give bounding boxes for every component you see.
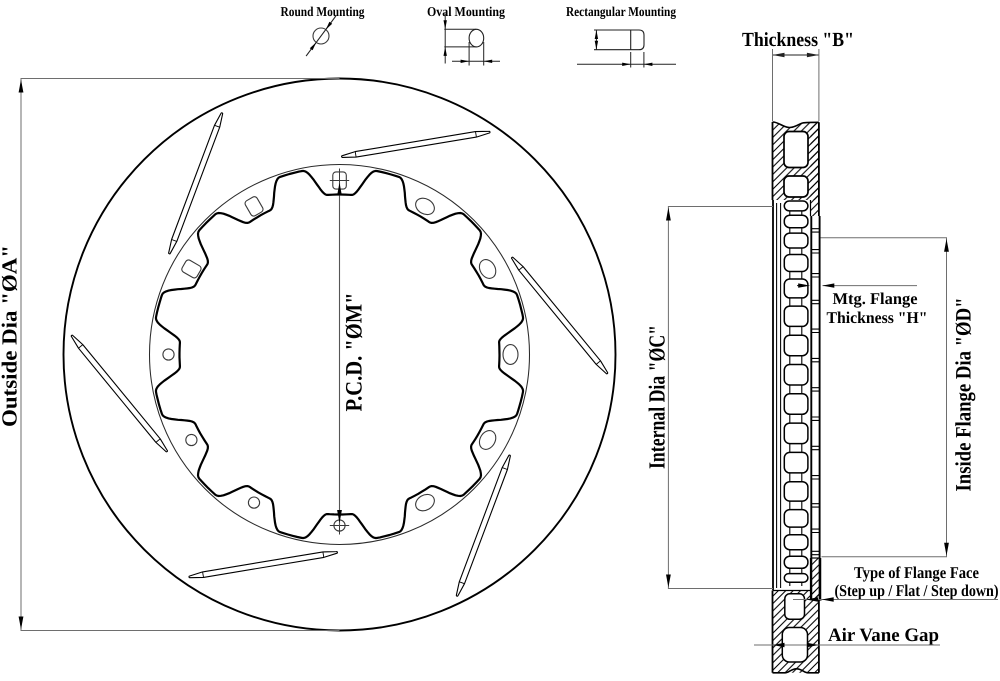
svg-text:(Step up / Flat / Step down): (Step up / Flat / Step down) — [835, 581, 999, 600]
svg-text:Oval Mounting: Oval Mounting — [427, 4, 505, 19]
svg-text:Rectangular Mounting: Rectangular Mounting — [566, 4, 676, 19]
svg-text:Mtg. Flange: Mtg. Flange — [833, 289, 918, 308]
svg-text:P.C.D. "ØM": P.C.D. "ØM" — [342, 293, 368, 412]
svg-text:Thickness "H": Thickness "H" — [827, 308, 928, 327]
svg-text:Outside Dia "ØA": Outside Dia "ØA" — [0, 245, 22, 427]
svg-text:Air Vane Gap: Air Vane Gap — [828, 625, 939, 646]
svg-text:Type of Flange Face: Type of Flange Face — [854, 563, 979, 582]
svg-text:Round Mounting: Round Mounting — [281, 4, 365, 19]
svg-text:Internal Dia "ØC": Internal Dia "ØC" — [645, 325, 670, 469]
svg-text:Inside Flange Dia "ØD": Inside Flange Dia "ØD" — [951, 298, 976, 492]
svg-text:Thickness "B": Thickness "B" — [742, 29, 854, 51]
